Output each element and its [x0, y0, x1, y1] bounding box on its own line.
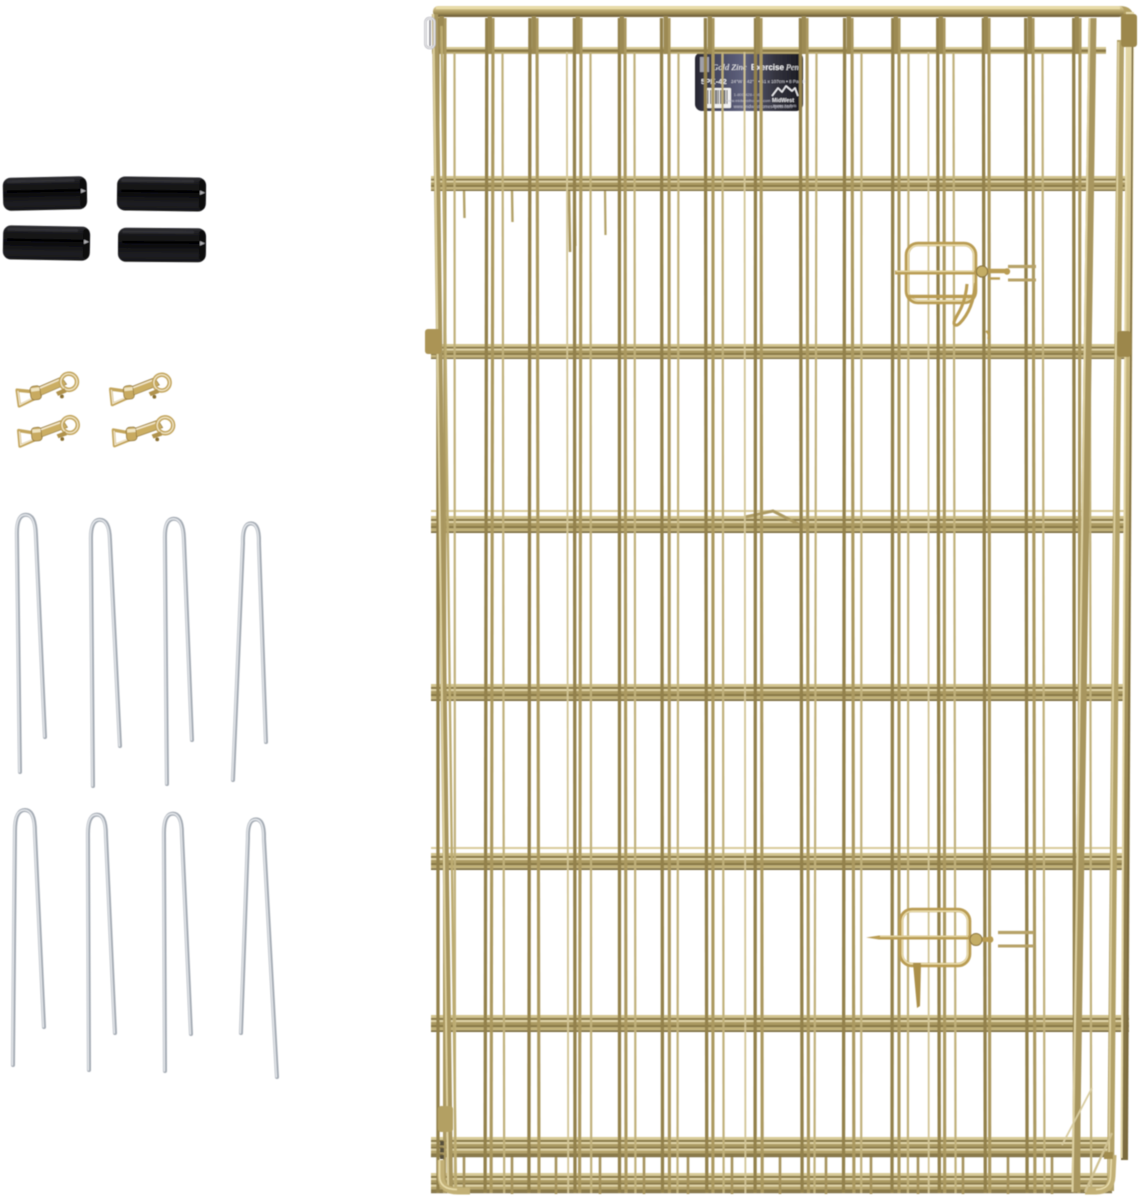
svg-text:Pen: Pen: [785, 63, 799, 72]
svg-text:www.midwesthomes.com: www.midwesthomes.com: [726, 98, 772, 103]
svg-text:24″W x 42″H • 61 x 107cm • 8 P: 24″W x 42″H • 61 x 107cm • 8 Panels: [731, 79, 808, 84]
svg-text:www.midwesthomes4pets.com: www.midwesthomes4pets.com: [734, 104, 793, 109]
svg-text:1-800-428-8560: 1-800-428-8560: [734, 92, 763, 97]
svg-text:Gold Zinc: Gold Zinc: [712, 62, 747, 72]
